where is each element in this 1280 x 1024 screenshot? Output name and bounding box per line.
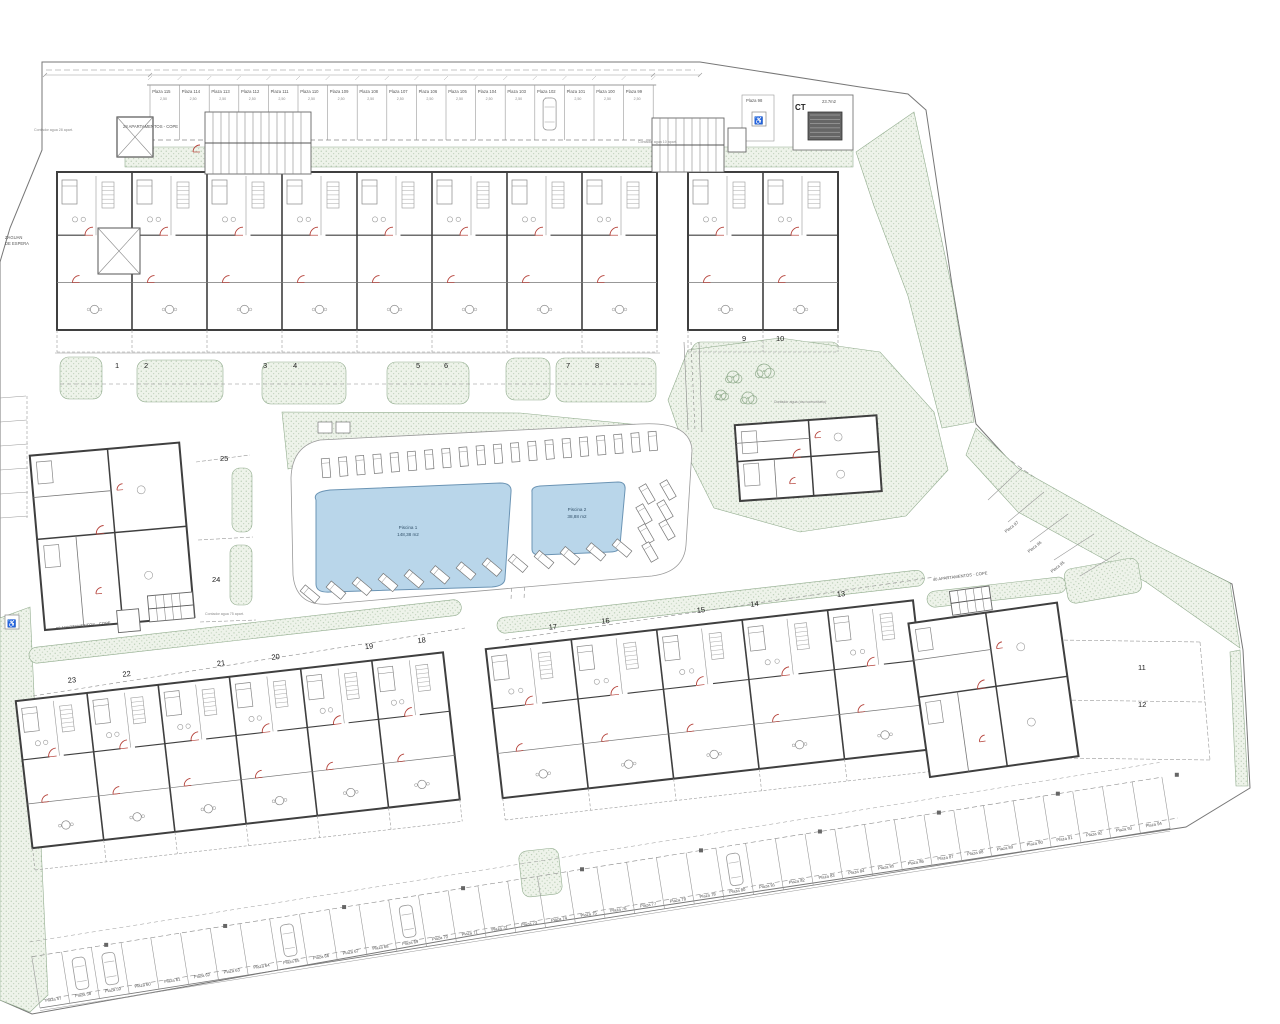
contador-10-label: Contador agua 10 apart.	[638, 140, 677, 144]
unit-number: 10	[776, 334, 784, 343]
sun-lounger	[596, 435, 606, 455]
pool-2-name: Piscina 2	[568, 507, 587, 512]
parking-stall-label: Plaza 111	[271, 89, 290, 94]
sun-lounger	[648, 431, 658, 451]
handicap-glyph: ♿	[754, 116, 763, 125]
sun-lounger	[493, 444, 503, 464]
sun-lounger	[338, 457, 348, 477]
parking-stall-label: Plaza 99	[626, 89, 643, 94]
unit-number: 4	[293, 361, 297, 370]
unit-number: 24	[212, 575, 220, 584]
parking-stall-dim: 2,50	[456, 97, 463, 101]
sun-lounger	[407, 451, 417, 471]
zaguan-label: ZAGUAN	[5, 235, 22, 240]
unit-number: 11	[1138, 663, 1146, 672]
unit-number: 22	[122, 669, 131, 679]
zaguan-label-2: DE ESPERA	[5, 241, 29, 246]
sun-lounger	[510, 443, 520, 463]
pool-2-area: 38,88 m2	[567, 514, 587, 519]
car-icon	[543, 98, 556, 130]
kiosk-box	[336, 422, 350, 433]
stairs-icon	[205, 112, 311, 174]
parking-stall-dim: 2,50	[426, 97, 433, 101]
sun-lounger	[579, 437, 589, 457]
parking-stall-dim: 2,50	[249, 97, 256, 101]
unit-number: 3	[263, 361, 267, 370]
unit-number: 1	[115, 361, 119, 370]
handicap-parking-icon: ♿	[752, 112, 766, 126]
unit-number: 12	[1138, 700, 1146, 709]
parking-stall-dim: 2,50	[338, 97, 345, 101]
terrace	[291, 422, 692, 604]
parking-stall-label: Plaza 112	[241, 89, 260, 94]
unit-number: 15	[696, 605, 705, 615]
unit-number: 6	[444, 361, 448, 370]
unit-number: 20	[271, 652, 280, 662]
parking-stall-dim: 2,50	[397, 97, 404, 101]
sun-lounger	[442, 448, 452, 468]
parking-stall-dim: 2,50	[634, 97, 641, 101]
unit-number: 23	[67, 675, 76, 685]
site-plan: Plaza 1152,50Plaza 1142,50Plaza 1132,50P…	[0, 0, 1280, 1024]
unit-number: 2	[144, 361, 148, 370]
contador-28-label: Contador agua 28 apart.	[34, 128, 73, 132]
unit-number: 7	[566, 361, 570, 370]
parking-stall-dim: 2,50	[190, 97, 197, 101]
parking-stall-label: Plaza 109	[330, 89, 349, 94]
parking-stall-dim: 2,50	[278, 97, 285, 101]
sun-lounger	[321, 458, 331, 478]
unit-number: 13	[836, 589, 845, 599]
ct-area-label: 23.7m2	[822, 99, 837, 104]
parking-stall-label: Plaza 104	[478, 89, 497, 94]
unit-number: 8	[595, 361, 599, 370]
drawing-sheet: Plaza 1152,50Plaza 1142,50Plaza 1132,50P…	[0, 0, 1280, 1024]
sun-lounger	[631, 433, 641, 453]
pool-terrace	[291, 422, 692, 604]
sun-lounger	[562, 438, 572, 458]
pool-1-name: Piscina 1	[399, 525, 418, 530]
apartments-top-label: 28 APARTAMENTOS - COPE	[123, 124, 178, 129]
handicap-glyph: ♿	[7, 619, 16, 628]
ct-label: CT	[795, 103, 806, 112]
sun-lounger	[390, 453, 400, 473]
parking-stall-dim: 2,50	[367, 97, 374, 101]
stairs-icon	[147, 592, 194, 622]
plaza-98-label: Plaza 98	[746, 98, 763, 103]
parking-stall-label: Plaza 100	[596, 89, 615, 94]
parking-stall-label: Plaza 114	[182, 89, 201, 94]
parking-stall-dim: 2,50	[486, 97, 493, 101]
parking-stall-label: Plaza 105	[448, 89, 467, 94]
sun-lounger	[373, 454, 383, 474]
community-building	[735, 415, 882, 501]
building-cluster-24-25	[30, 443, 195, 639]
unit-number: 18	[417, 635, 426, 645]
handicap-parking-icon: ♿	[5, 615, 19, 629]
parking-stall-dim: 2,50	[219, 97, 226, 101]
kiosk-box	[318, 422, 332, 433]
unit-number: 14	[750, 599, 759, 609]
parking-stall-label: Plaza 110	[300, 89, 319, 94]
pool-1-area: 148,38 m2	[397, 532, 419, 537]
parking-stall-dim: 2,50	[604, 97, 611, 101]
sun-lounger	[424, 450, 434, 470]
unit-number: 5	[416, 361, 420, 370]
sun-lounger	[459, 447, 469, 467]
unit-number: 16	[601, 616, 610, 626]
parking-stall-dim: 2,50	[574, 97, 581, 101]
unit-number: 21	[216, 658, 225, 668]
sun-lounger	[528, 441, 538, 461]
unit-number: 25	[220, 454, 228, 463]
parking-stall-label: Plaza 107	[389, 89, 408, 94]
contador-comunitario-label: Contador agua (uso comunitario)	[774, 400, 827, 404]
parking-stall-label: Plaza 101	[567, 89, 586, 94]
parking-stall-dim: 2,50	[160, 97, 167, 101]
unit-number: 19	[364, 641, 373, 651]
sun-lounger	[476, 445, 486, 465]
parking-stall-label: Plaza 102	[537, 89, 556, 94]
building-row-9-10: 910	[688, 172, 838, 352]
parking-stall-label: Plaza 115	[152, 89, 171, 94]
parking-stall-label: Plaza 106	[419, 89, 438, 94]
parking-stall-dim: 2,50	[515, 97, 522, 101]
parking-stall-label: Plaza 108	[359, 89, 378, 94]
parking-stall-dim: 2,50	[308, 97, 315, 101]
parking-stall-label: Plaza 103	[507, 89, 526, 94]
parking-stall-label: Plaza 113	[211, 89, 230, 94]
sun-lounger	[356, 455, 366, 475]
sun-lounger	[614, 434, 624, 454]
unit-number: 17	[548, 622, 557, 632]
stairs-icon	[949, 586, 992, 615]
unit-number: 9	[742, 334, 746, 343]
stairs-icon	[652, 118, 724, 172]
sun-lounger	[545, 440, 555, 460]
elevator-icon	[117, 117, 153, 157]
contador-75-label: Contador agua 75 apart.	[205, 612, 244, 616]
